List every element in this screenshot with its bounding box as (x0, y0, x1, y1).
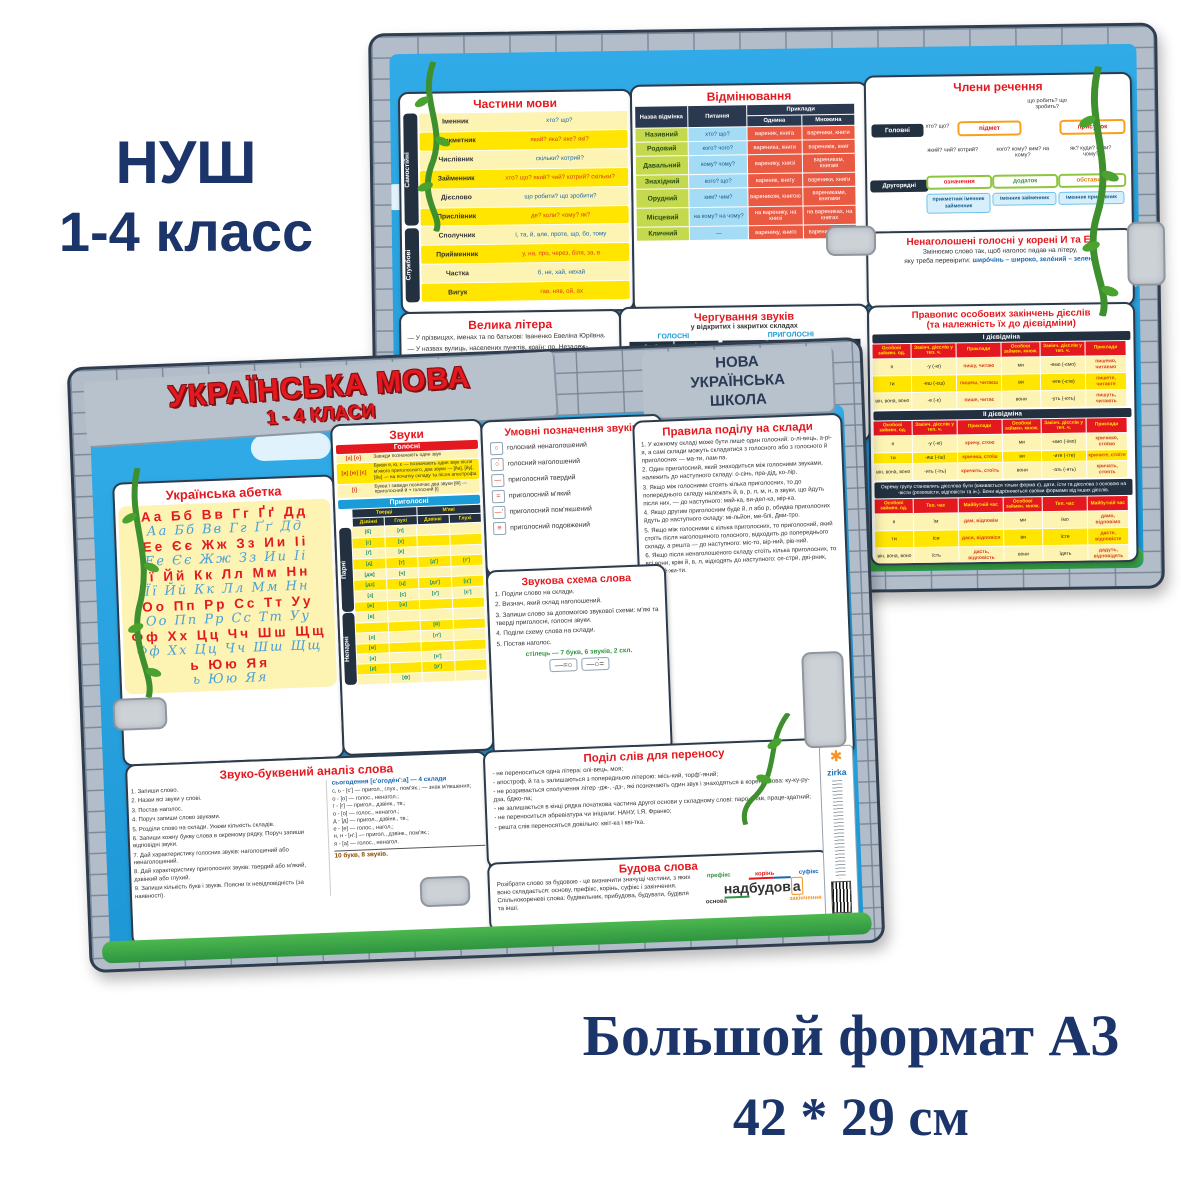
sound-cell: [х] (385, 536, 417, 547)
pronoun-plural: вони (1004, 547, 1042, 564)
sound-description: Буква ї завжди позначає два звуки [йі] —… (373, 479, 479, 497)
examples-plural: пишемо, читаємо (1086, 356, 1126, 373)
case-question: кого? чого? (689, 141, 747, 155)
sound-cell: [б] (352, 527, 384, 538)
word-root: буд (749, 877, 774, 896)
main-question: хто? що? (921, 123, 953, 130)
sound-symbol-icon: ≡ (493, 522, 506, 535)
sound-cell: [й] (421, 620, 453, 631)
header-cell: Теп. час (914, 499, 958, 514)
sound-cell: [ц] (387, 579, 419, 590)
panel-title: Велика літера (404, 316, 616, 333)
sound-cell: [т′] (451, 555, 483, 566)
sound-symbols: [а] [о] (336, 454, 370, 463)
pronoun-singular: я (875, 514, 913, 531)
sound-cell: [дз′] (419, 577, 451, 588)
transfer-rules: - не переноситься одна літера: олі-вець,… (488, 757, 822, 831)
header-cell: Закінч. дієслів у теп. ч. (1040, 341, 1084, 356)
word-ending: а (790, 877, 802, 895)
sound-cell: [р] (357, 664, 389, 675)
table-row: Числівник скільки? котрий? (420, 149, 628, 170)
predicate-box: присудок (1059, 119, 1125, 135)
pronoun-plural: вони (1003, 462, 1041, 479)
sound-symbol-icon: ○ (490, 442, 503, 455)
sound-cell: [в] (355, 612, 387, 623)
sound-cell: [л′] (421, 630, 453, 641)
pronoun-singular: я (874, 436, 912, 453)
examples-plural: кричать, стоять (1087, 461, 1127, 478)
example-plural: вареникам, книгам (803, 154, 855, 173)
pronoun-singular: ти (875, 531, 913, 548)
predicate-question: що робить? що зробить? (1017, 98, 1077, 112)
part-of-speech-name: Вигук (422, 283, 494, 302)
example-plural: вареників, книг (803, 140, 855, 154)
part-of-speech-name: Прикметник (419, 132, 491, 151)
example-singular: вареник, книга (747, 126, 801, 140)
part-of-speech-name: Сполучник (421, 226, 493, 245)
flower-icon: ✱ (830, 749, 843, 764)
sound-cell (455, 660, 487, 671)
ending-singular: -е (-є) (912, 392, 956, 409)
present-singular: їсть (914, 548, 958, 565)
promo-bottom-line1: Большой формат А3 (531, 994, 1171, 1078)
symbol-label: приголосний м'який (509, 490, 571, 499)
sound-symbol-icon: ○́ (490, 458, 503, 471)
pronoun-plural: ми (1004, 513, 1042, 530)
case-question: кого? що? (689, 174, 747, 188)
table-row: він, вона, воно -ить (-їть) кричить, сто… (874, 461, 1132, 481)
sound-cell: [т] (386, 557, 418, 568)
ending-label: закінчення (789, 895, 821, 902)
table-row: він, вона, воно -е (-є) пише, читає вони… (873, 390, 1131, 410)
pronoun-singular: ти (874, 453, 912, 464)
sound-cell (454, 629, 486, 640)
sound-cell (420, 599, 452, 610)
sound-cell: [з] (354, 590, 386, 601)
header-cell: Особові займен. од. (872, 344, 910, 359)
ending-singular: -у (-ю) (913, 435, 957, 452)
header-cell: Приклади (958, 420, 1002, 435)
word-prefix: над (723, 880, 749, 899)
panel-title: Частини мови (403, 95, 627, 112)
header-cell: Приклади (956, 343, 1000, 358)
part-of-speech-question: гав, няв, ой, ах (494, 281, 630, 301)
sound-symbols: [ї] (337, 483, 372, 498)
example-singular: варенику, книго (749, 225, 803, 239)
sound-cell (453, 618, 485, 629)
sound-cell: [д′] (418, 556, 450, 567)
case-name: Родовий (636, 142, 688, 156)
sound-cell (418, 545, 450, 556)
pronoun-singular: він, вона, воно (874, 464, 912, 481)
scheme-steps: 1. Поділи слово на склади.2. Визнач, яки… (492, 585, 664, 649)
sound-cell: [л] (356, 632, 388, 643)
adverbial-parts: іменник прислівник (1058, 191, 1124, 205)
example-singular: вареником, книгою (748, 187, 802, 206)
pronoun-singular: він, вона, воно (875, 548, 913, 565)
symbol-label: голосний ненаголошений (507, 442, 587, 452)
case-name: Орудний (636, 189, 688, 208)
header-cell: Теп. час (1043, 497, 1087, 512)
part-of-speech-name: Числівник (420, 151, 492, 170)
sound-cell: [д] (353, 559, 385, 570)
part-of-speech-question: хто? що? (491, 111, 627, 131)
future-plural: дамо, відповімо (1088, 511, 1128, 528)
header-cell: Майбутній час (959, 498, 1003, 513)
sound-cell: [н] (357, 653, 389, 664)
case-name: Знахідний (636, 175, 688, 189)
sound-cell: [дж] (354, 569, 386, 580)
promo-top-line1: НУШ (28, 128, 344, 199)
poster-front-sky: Українська абетка Аа Бб Вв Гг Ґґ Дд Аа Б… (90, 405, 863, 952)
conjugation-2-table: я -у (-ю) кричу, стою ми -имо (-їмо) кри… (874, 433, 1133, 481)
sound-cell (419, 567, 451, 578)
parts-of-speech-groups: Самостійні Службові (403, 114, 420, 302)
part-of-speech-question: який? яка? яке? які? (491, 130, 627, 150)
legend-row: ≡ приголосний подовжений (493, 516, 657, 535)
sound-cell (389, 642, 421, 653)
present-singular: їси (914, 531, 958, 548)
object-question: кого? кому? ким? на кому? (992, 146, 1054, 160)
conjugation-1-table: я -у (-ю) пишу, читаю ми -емо (-ємо) пиш… (873, 356, 1132, 410)
column-header: Множина (802, 115, 854, 126)
vowel-rows: [а] [о] Завжди позначають один звук [я] … (336, 450, 480, 499)
main-members-label: Головні (871, 124, 923, 138)
scheme-box-1: —=○ (550, 658, 578, 672)
declension-table: Називний хто? що? вареник, книга вареник… (635, 126, 865, 241)
word-suffix: ов (773, 876, 791, 895)
stone-decoration (1127, 221, 1166, 286)
column-header: Назва відмінка (635, 106, 687, 128)
irregular-verbs-table: я їм дам, відповім ми їмо дамо, відповім… (875, 511, 1134, 565)
sound-symbol-icon: = (492, 490, 505, 503)
sound-cell: [с′] (452, 587, 484, 598)
header-cell: Закінч. дієслів у теп. ч. (913, 420, 957, 435)
voiced-header: Дзвінкі (417, 515, 449, 524)
header-cell: Особові займен. од. (874, 421, 912, 436)
sound-cell (423, 672, 455, 683)
parts-of-speech-panel: Частини мови Самостійні Службові Іменник… (398, 89, 635, 314)
pronoun-plural: ви (1002, 374, 1040, 391)
case-question: хто? що? (688, 127, 746, 141)
ending-singular: -ить (-їть) (913, 463, 957, 480)
rule-examples: ширóчінь – широко, зелéний – зелень (972, 255, 1096, 264)
header-cell: Особові займен. множ. (1003, 419, 1041, 434)
column-header: Приклади (747, 104, 854, 115)
examples-plural: пишуть, читають (1086, 390, 1126, 407)
case-name: Кличний (637, 227, 689, 241)
case-question: — (690, 226, 748, 240)
case-name: Місцевий (637, 208, 689, 227)
part-of-speech-name: Прислівник (421, 207, 493, 226)
future-singular: дам, відповім (959, 513, 1003, 530)
sound-cell (454, 650, 486, 661)
fine-print-lines (832, 780, 846, 878)
example-singular: варенику, книзі (748, 154, 802, 173)
sound-cell (356, 622, 388, 633)
analysis-total: 10 букв, 8 звуків. (334, 844, 485, 859)
base-label: основа (706, 899, 727, 906)
scheme-box-2: —○́= (581, 657, 609, 671)
object-box: додаток (992, 174, 1058, 189)
stone-decoration (112, 697, 167, 731)
sound-symbol-icon: — (491, 474, 504, 487)
pronoun-singular: я (873, 359, 911, 376)
example-plural: вареники, книги (802, 126, 854, 140)
header-cell: Закінч. дієслів у теп. ч. (911, 343, 955, 358)
sound-cell: [м] (356, 643, 388, 654)
examples-plural: кричимо, стоїмо (1087, 433, 1127, 450)
attribute-parts: прикметник іменник займенник (926, 193, 990, 213)
sound-cell (450, 544, 482, 555)
ending-plural: -ете (-єте) (1041, 373, 1085, 390)
part-of-speech-question: хто? що? який? чий? котрий? скільки? (492, 168, 628, 188)
table-row: Сполучник і, та, й, але, проте, що, бо, … (421, 224, 629, 245)
example-word: надбудова (701, 877, 825, 898)
table-row: Частка б, не, хай, нехай (421, 262, 629, 283)
sound-cell (388, 610, 420, 621)
present-singular: їм (914, 514, 958, 531)
verb-endings-panel: Правопис особових закінчень дієслів (та … (867, 302, 1139, 566)
group-label-independent: Самостійні (403, 114, 419, 226)
pronoun-plural: ви (1003, 451, 1041, 462)
promo-bottom-line2: 42 * 29 см (531, 1078, 1171, 1156)
sound-cell (358, 674, 390, 685)
pronoun-singular: ти (873, 376, 911, 393)
examples-singular: кричить, стоїть (958, 463, 1002, 480)
examples-plural: кричите, стоїте (1087, 450, 1127, 461)
parts-of-speech-table: Іменник хто? що? Прикметник який? яка? я… (419, 111, 630, 302)
suffix-label: суфікс (799, 869, 819, 876)
part-of-speech-question: і, та, й, але, проте, що, бо, тому (493, 224, 629, 244)
examples-singular: кричиш, стоїш (958, 452, 1002, 463)
sound-cell (420, 609, 452, 620)
pronoun-plural: ви (1004, 530, 1042, 547)
subject-box: підмет (957, 120, 1021, 136)
promo-top-text: НУШ 1-4 класс (28, 128, 344, 265)
analysis-steps: 1. Запиши слово.2. Назви всі звуки у сло… (131, 780, 324, 903)
ending-plural: -имо (-їмо) (1042, 433, 1086, 450)
header-cell: Приклади (1085, 341, 1125, 356)
sound-cell (417, 535, 449, 546)
header-cell: Особові займен. множ. (1004, 498, 1042, 513)
barcode (831, 881, 852, 914)
sound-cell: [ф] (390, 673, 422, 684)
case-question: кому? чому? (689, 155, 747, 174)
sounds-panel: Звуки Голосні [а] [о] Завжди позначають … (330, 419, 495, 757)
declension-panel: Відмінювання Назва відмінка Питання Прик… (630, 82, 871, 313)
header-cell: Закінч. дієслів у теп. ч. (1042, 418, 1086, 433)
sound-cell: [ц′] (451, 576, 483, 587)
sound-symbol-icon: —’ (492, 506, 505, 519)
alphabet-rows: Аа Бб Вв Гг Ґґ Дд Аа Бб Вв Гг Ґґ Дд Ее Є… (118, 498, 337, 694)
rule-item: — У прізвищах, іменах та по батькові: Ів… (407, 332, 613, 343)
sound-cell (390, 662, 422, 673)
table-row: Займенник хто? що? який? чий? котрий? ск… (420, 168, 628, 189)
ending-plural: -емо (-ємо) (1041, 356, 1085, 373)
sound-symbols: [я] [ю] [є] (337, 463, 372, 484)
ending-singular: -иш (-їш) (913, 452, 957, 463)
sound-description: Букви я, ю, є — позначають один звук піс… (373, 459, 480, 483)
sound-cell: [п] (385, 525, 417, 536)
pronoun-singular: він, вона, воно (873, 393, 911, 410)
product-image: НУШ 1-4 класс Частини мови Самостійні Сл… (0, 0, 1181, 1181)
unpaired-consonants: [в] [й] (355, 608, 487, 685)
header-cell: Приклади (1087, 418, 1127, 433)
part-of-speech-question: де? коли? чому? як? (493, 205, 629, 225)
table-row: Прикметник який? яка? яке? які? (419, 130, 627, 151)
sound-cell (454, 639, 486, 650)
sound-cell: [ж] (355, 601, 387, 612)
pronoun-plural: ми (1002, 357, 1040, 374)
sound-cell (449, 523, 481, 534)
sound-cell (451, 565, 483, 576)
table-row: Прислівник де? коли? чому? як? (421, 205, 629, 226)
case-question: ким? чим? (689, 188, 747, 207)
part-of-speech-name: Дієслово (420, 188, 492, 207)
case-question: на кому? на чому? (690, 207, 748, 226)
future-singular: даси, відповіси (959, 530, 1003, 547)
promo-bottom-text: Большой формат А3 42 * 29 см (531, 994, 1171, 1156)
word-structure-diagram: префікс корінь суфікс надбудова основа з… (701, 869, 826, 906)
attribute-question: який? чий? котрий? (924, 147, 982, 154)
object-parts: іменник займенник (992, 192, 1056, 206)
sound-scheme-panel: Звукова схема слова 1. Поділи слово на с… (486, 564, 673, 759)
sound-cell: [г] (352, 537, 384, 548)
sound-cell: [с] (387, 589, 419, 600)
sound-cell (389, 652, 421, 663)
sound-cell (388, 621, 420, 632)
syllable-rules-list: 1. У кожному складі може бути лише один … (638, 434, 843, 576)
sound-cell (452, 597, 484, 608)
examples-singular: пишеш, читаєш (957, 375, 1001, 392)
case-name: Давальний (636, 156, 688, 175)
example-plural: варениками, книгами (803, 187, 855, 206)
adverbial-box: обставина (1058, 173, 1126, 188)
example-singular: на варенику, на книзі (749, 206, 803, 225)
sound-cell: [з′] (419, 588, 451, 599)
sound-cell (421, 640, 453, 651)
part-of-speech-name: Займенник (420, 170, 492, 189)
sound-cell (453, 608, 485, 619)
ending-plural: -уть (-ють) (1041, 390, 1085, 407)
sound-letter-analysis-panel: Звуко-буквений аналіз слова 1. Запиши сл… (125, 751, 494, 947)
symbol-label: приголосний подовжений (510, 522, 590, 532)
sound-cell: [н′] (422, 651, 454, 662)
part-of-speech-question: що робити? що зробити? (492, 187, 628, 207)
stone-decoration (826, 225, 876, 256)
rule-item: 6. Якщо після ненаголошеного складу стої… (645, 545, 840, 576)
example-plural: вареники, книги (803, 173, 855, 187)
example-singular: вареник, книгу (748, 173, 802, 187)
symbol-label: голосний наголошений (508, 458, 581, 468)
ending-singular: -у (-ю) (912, 358, 956, 375)
promo-top-line2: 1-4 класс (28, 199, 344, 265)
examples-plural: пишете, читаєте (1086, 373, 1126, 390)
paired-consonants: [б] [п] [г] [х] (352, 523, 484, 612)
prefix-label: префікс (707, 872, 731, 879)
poster-front: УКРАЇНСЬКА МОВА 1 - 4 КЛАСИ НОВА УКРАЇНС… (67, 337, 886, 973)
secondary-members-label: Другорядні (870, 180, 928, 193)
sound-cell (450, 534, 482, 545)
future-singular: дасть, відповість (959, 547, 1003, 564)
word-transfer-panel: Поділ слів для переносу - не переноситьс… (483, 738, 829, 869)
attribute-box: означення (926, 175, 992, 190)
rule-text-line2: яку треба перевірити: (904, 257, 971, 265)
ending-plural: -ать (-ять) (1042, 461, 1086, 478)
table-row: Дієслово що робити? що зробити? (420, 187, 628, 208)
group-label-service: Службові (405, 227, 420, 302)
sound-cell: [ч] (386, 568, 418, 579)
voiceless-header: Глухі (449, 514, 481, 523)
symbol-label: приголосний твердий (508, 474, 576, 484)
present-plural: їмо (1043, 512, 1087, 529)
unstressed-vowels-panel: Ненаголошені голосні у корені И та Е: Зм… (866, 228, 1135, 310)
panel-title-line2: (та належність їх до дієвідміни) (872, 318, 1130, 332)
future-plural: дасте, відповісте (1088, 528, 1128, 545)
symbol-label: приголосний пом'якшений (509, 505, 592, 515)
present-plural: їсте (1043, 529, 1087, 546)
sound-cell: [ґ] (353, 548, 385, 559)
future-plural: дадуть, відповідять (1088, 545, 1128, 562)
sound-cell: [ш] (387, 600, 419, 611)
part-of-speech-question: у, на, про, через, біля, за, в (493, 243, 629, 263)
present-plural: їдять (1043, 546, 1087, 563)
ending-singular: -еш (-єш) (912, 375, 956, 392)
part-of-speech-name: Частка (421, 264, 493, 283)
voiceless-header: Глухі (385, 516, 417, 525)
pronoun-plural: вони (1002, 391, 1040, 408)
adverbial-question: як? куди? коли? чому? (1062, 145, 1120, 159)
group-label: ГОЛОСНІ (629, 333, 718, 341)
cloud-decoration (250, 432, 331, 461)
stone-decoration (419, 875, 470, 907)
sound-cell: [к] (385, 547, 417, 558)
sentence-members-panel: Члени речення Головні хто? що? підмет що… (864, 72, 1134, 236)
example-singular: вареника, книги (748, 140, 802, 154)
publisher-strip: ✱ zirka (819, 745, 860, 918)
examples-singular: пишу, читаю (957, 358, 1001, 375)
table-row: Прийменник у, на, про, через, біля, за, … (421, 243, 629, 264)
table-row: він, вона, воно їсть дасть, відповість в… (875, 545, 1133, 565)
voiced-header: Дзвінкі (353, 518, 385, 527)
analysis-lines: с, ь - [с'] — пригол., глух., пом'як.; —… (332, 783, 485, 847)
structure-text: Розібрати слово за будовою - це визначит… (493, 874, 696, 914)
panel-title: Відмінювання (635, 88, 863, 105)
example-plural: на варениках, на книгах (804, 206, 856, 225)
header-cell: Майбутній час (1088, 496, 1128, 511)
header-cell: Особові займен. од. (875, 499, 913, 514)
sound-cell (389, 631, 421, 642)
examples-singular: кричу, стою (958, 435, 1002, 452)
stone-decoration (801, 651, 847, 749)
sound-cell (417, 524, 449, 535)
ending-plural: -ите (-їте) (1042, 450, 1086, 461)
case-name: Називний (635, 128, 687, 142)
pronoun-plural: ми (1003, 434, 1041, 451)
sound-cell (455, 670, 487, 681)
part-of-speech-name: Іменник (419, 113, 491, 132)
examples-singular: пише, читає (957, 392, 1001, 409)
table-row: Іменник хто? що? (419, 111, 627, 132)
nush-badge: НОВА УКРАЇНСЬКА ШКОЛА (642, 345, 834, 418)
table-row: Вигук гав, няв, ой, ах (422, 281, 630, 302)
column-header: Питання (688, 105, 746, 127)
part-of-speech-name: Прийменник (421, 245, 493, 264)
part-of-speech-question: скільки? котрий? (492, 149, 628, 169)
column-header: Однина (747, 115, 801, 126)
sound-cell: [р′] (422, 661, 454, 672)
